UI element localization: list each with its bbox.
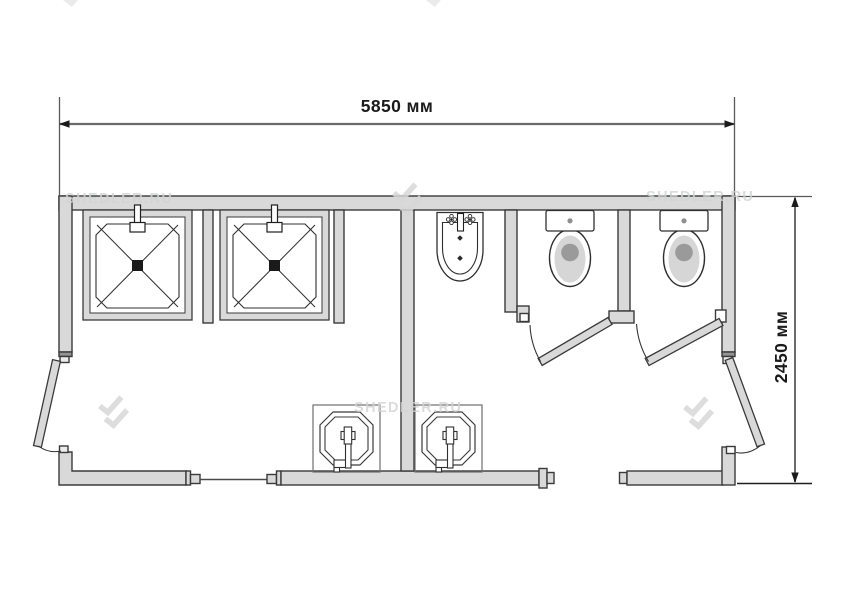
floor-plan-canvas: 5850 мм 2450 мм SHEDLER.RU SHEDLER.RU SH… [0,0,848,600]
window-frame-right-nub [267,475,277,484]
arrow-up-icon [791,197,798,208]
stall-partition-1-notch [520,314,529,322]
shower-drain-2 [269,260,280,271]
shower-drain-1 [132,260,143,271]
exterior-door-left [34,360,61,448]
central-partition [401,210,414,471]
wall-bottom-right [627,471,723,485]
shower-divider-2 [334,210,344,323]
stall-partition-2-cap [609,311,634,323]
opening-frame-left-a [539,469,547,489]
watermark-logo-icon-top-edge-1 [63,0,85,3]
stall-door-1-swing-arc [530,325,541,362]
arrow-down-icon [791,473,798,484]
stall-partition-2 [618,210,630,311]
washbasin-icon [437,213,483,282]
washbasin-spout [458,214,464,232]
sink-icon-1 [313,405,380,472]
stall-door-2 [645,318,723,365]
shower-tray-2 [220,205,329,320]
stall-door-1 [538,318,612,366]
shower-tray-1 [83,205,192,320]
arrow-left-icon [59,120,70,128]
toilet-icon-1 [546,211,594,287]
wall-bottom-center [281,471,539,485]
opening-frame-left-b [547,473,554,484]
stall-door-2-swing-arc [637,324,649,362]
stall-partition-1 [505,210,517,312]
wall-bottom-left-corner [59,452,186,485]
dimension-height-label: 2450 мм [771,297,791,397]
dimension-width-label: 5850 мм [59,96,735,117]
watermark-logo-icon-top-edge-2 [426,0,448,3]
wall-left [59,196,72,352]
wall-right [722,196,735,352]
arrow-right-icon [725,120,736,128]
window-frame-left-nub [191,475,201,484]
wall-left-hinge-jamb [60,357,69,363]
floor-plan-drawing [0,0,848,600]
shower-divider-1 [203,210,213,323]
exterior-door-right [725,358,764,447]
watermark-logo-icon-bottom-left [100,397,127,425]
opening-frame-right [620,473,628,484]
toilet-icon-2 [660,211,708,287]
watermark-logo-icon-bottom-right [685,398,712,426]
wall-bottom-right-hinge-nub [727,447,736,454]
sink-icon-2 [415,405,482,472]
doors [34,318,765,453]
